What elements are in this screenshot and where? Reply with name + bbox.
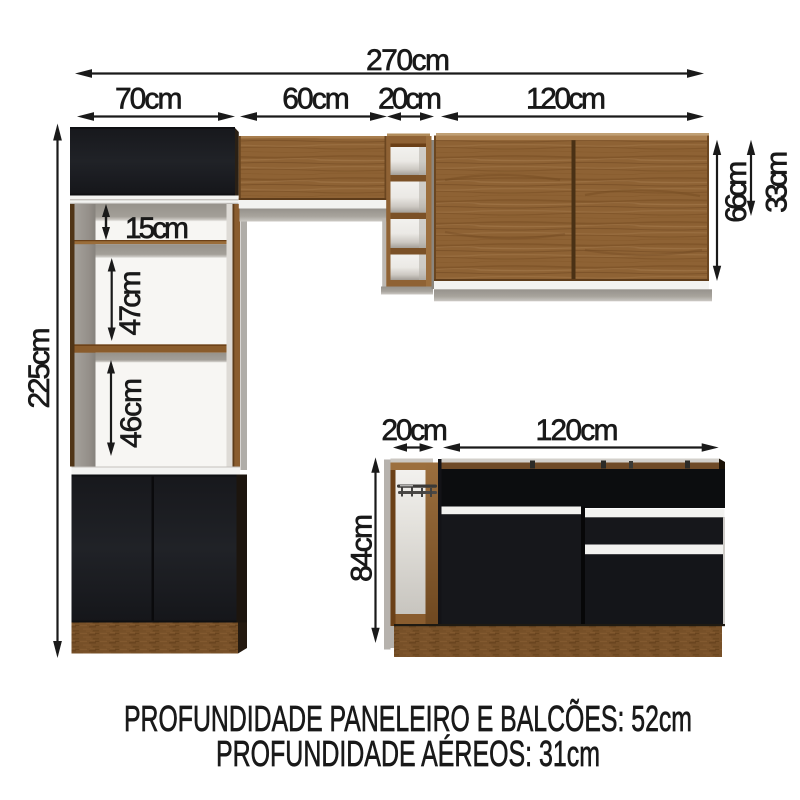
svg-text:66cm: 66cm bbox=[720, 161, 753, 223]
svg-text:20cm: 20cm bbox=[381, 414, 448, 447]
svg-text:46cm: 46cm bbox=[115, 378, 148, 448]
svg-text:60cm: 60cm bbox=[282, 83, 350, 116]
svg-text:20cm: 20cm bbox=[378, 83, 442, 116]
svg-text:120cm: 120cm bbox=[526, 83, 606, 116]
svg-text:47cm: 47cm bbox=[114, 271, 147, 336]
svg-text:270cm: 270cm bbox=[366, 44, 450, 77]
svg-text:225cm: 225cm bbox=[23, 328, 56, 409]
svg-text:PROFUNDIDADE AÉREOS: 31cm: PROFUNDIDADE AÉREOS: 31cm bbox=[216, 733, 600, 774]
svg-text:33cm: 33cm bbox=[761, 151, 794, 213]
svg-text:120cm: 120cm bbox=[536, 414, 619, 447]
svg-text:70cm: 70cm bbox=[115, 83, 183, 116]
svg-text:15cm: 15cm bbox=[125, 212, 189, 245]
svg-text:84cm: 84cm bbox=[346, 514, 379, 582]
